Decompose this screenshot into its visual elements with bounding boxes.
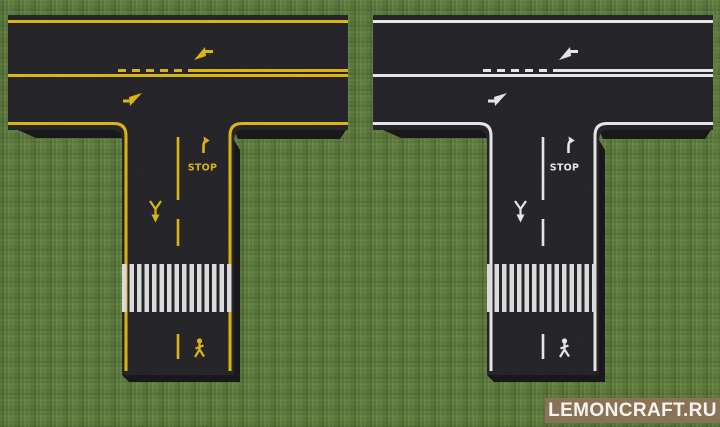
minecraft-road-scene: STOP STOP LEMONCRAFT.RU (0, 0, 720, 427)
watermark-label: LEMONCRAFT.RU (548, 401, 717, 420)
noise-overlay (0, 0, 720, 427)
roads-graphic: STOP STOP (0, 0, 720, 427)
watermark-badge: LEMONCRAFT.RU (545, 398, 720, 423)
